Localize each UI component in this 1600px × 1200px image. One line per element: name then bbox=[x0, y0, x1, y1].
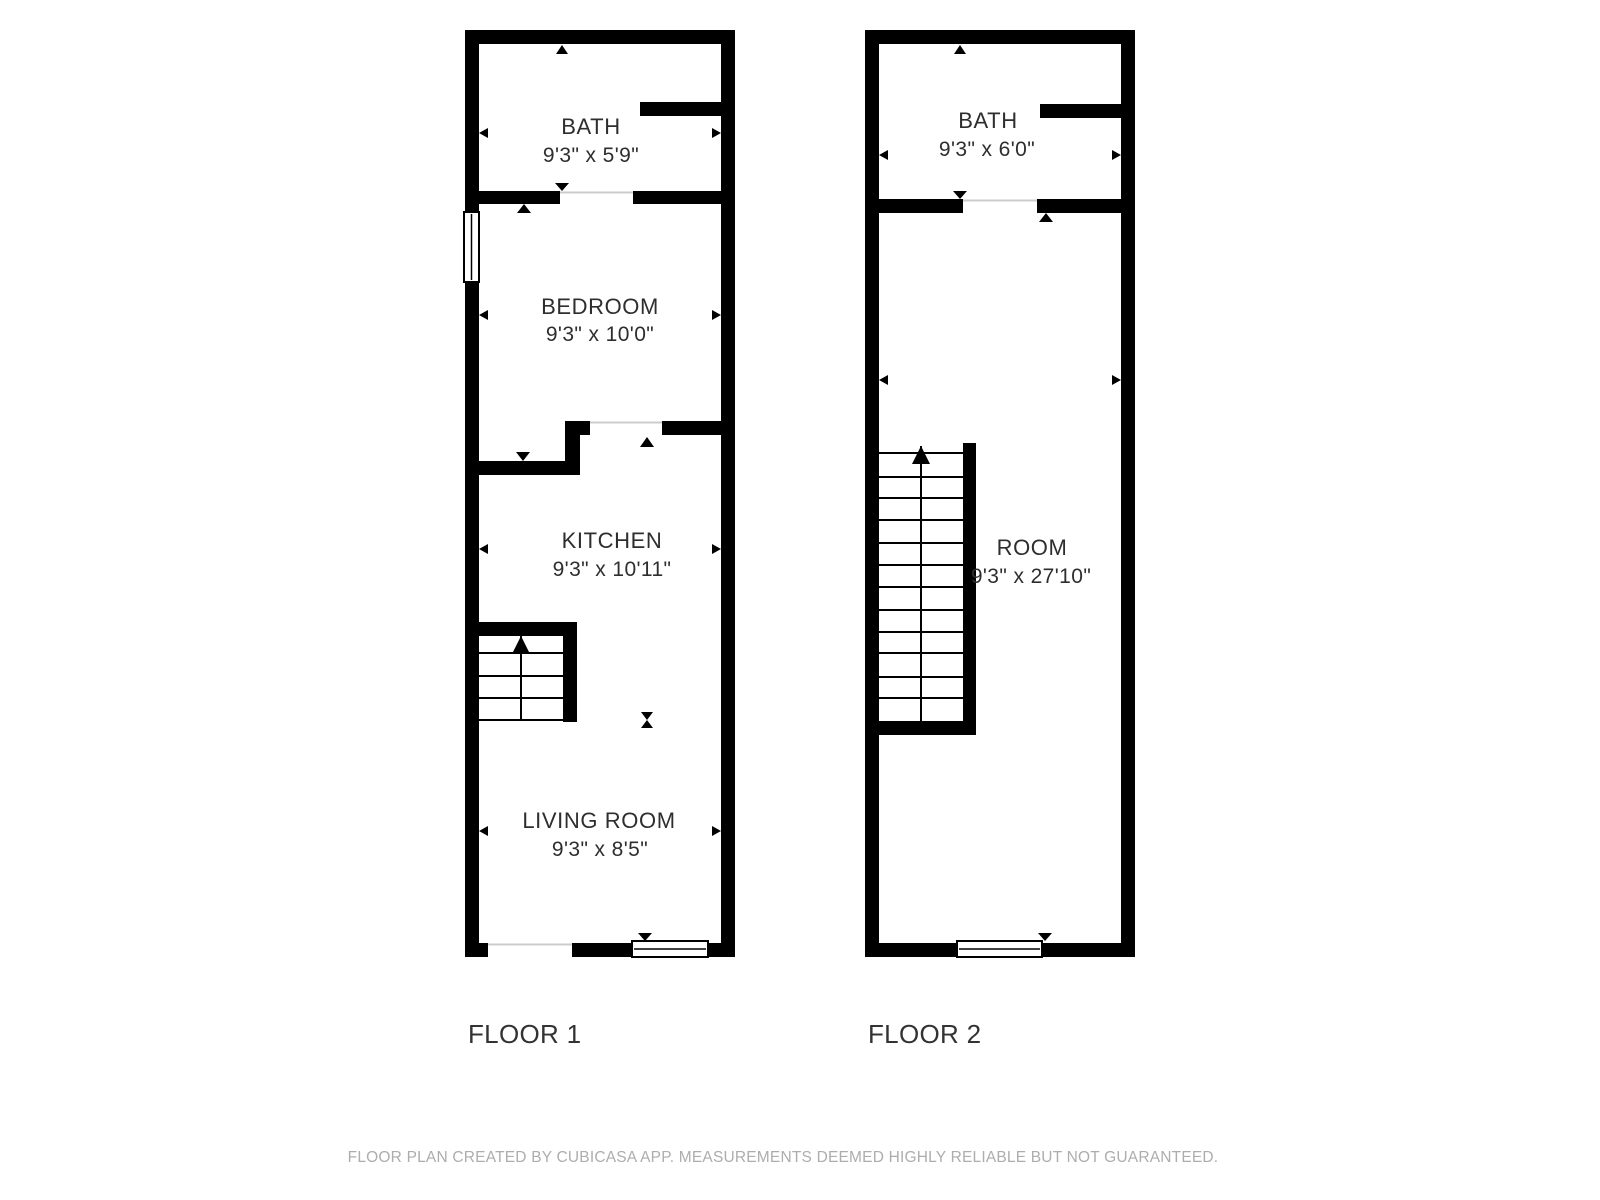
disclaimer-text: FLOOR PLAN CREATED BY CUBICASA APP. MEAS… bbox=[348, 1149, 1219, 1166]
floor2-bath-label: BATH bbox=[958, 108, 1017, 133]
floor-plan-drawing: BATH 9'3" x 5'9" BEDROOM 9'3" x 10'0" KI… bbox=[0, 0, 1600, 1200]
floor1-staircase bbox=[479, 636, 563, 720]
floor2-caption: FLOOR 2 bbox=[868, 1019, 981, 1049]
floor2-plan: BATH 9'3" x 6'0" ROOM 9'3" x 27'10" bbox=[865, 30, 1135, 957]
floor2-dimension-arrows bbox=[879, 45, 1121, 385]
floor1-bedroom-label: BEDROOM bbox=[541, 294, 659, 319]
floor1-livingroom-dimensions: 9'3" x 8'5" bbox=[552, 838, 648, 861]
floor1-kitchen-dimensions: 9'3" x 10'11" bbox=[553, 558, 672, 581]
stair-direction-arrow bbox=[512, 636, 530, 654]
floor1-livingroom-window bbox=[632, 941, 708, 957]
floor2-room-window bbox=[957, 941, 1042, 957]
stair-treads bbox=[879, 446, 963, 721]
floor2-room-label: ROOM bbox=[997, 535, 1068, 560]
floor2-bath-dimensions: 9'3" x 6'0" bbox=[939, 138, 1035, 161]
floor-plan-page: BATH 9'3" x 5'9" BEDROOM 9'3" x 10'0" KI… bbox=[0, 0, 1600, 1200]
floor1-livingroom-label: LIVING ROOM bbox=[522, 808, 675, 833]
floor1-bedroom-dimensions: 9'3" x 10'0" bbox=[546, 323, 654, 346]
floor2-staircase bbox=[879, 446, 963, 721]
floor1-caption: FLOOR 1 bbox=[468, 1019, 581, 1049]
floor2-room-dimensions: 9'3" x 27'10" bbox=[971, 565, 1091, 588]
floor1-bath-dimensions: 9'3" x 5'9" bbox=[543, 144, 639, 167]
floor1-bath-label: BATH bbox=[561, 114, 620, 139]
floor1-plan: BATH 9'3" x 5'9" BEDROOM 9'3" x 10'0" KI… bbox=[464, 30, 735, 957]
stair-direction-arrow bbox=[912, 446, 930, 464]
floor2-walls bbox=[865, 30, 1135, 957]
floor1-kitchen-label: KITCHEN bbox=[562, 528, 663, 553]
floor1-bedroom-window bbox=[464, 212, 479, 282]
